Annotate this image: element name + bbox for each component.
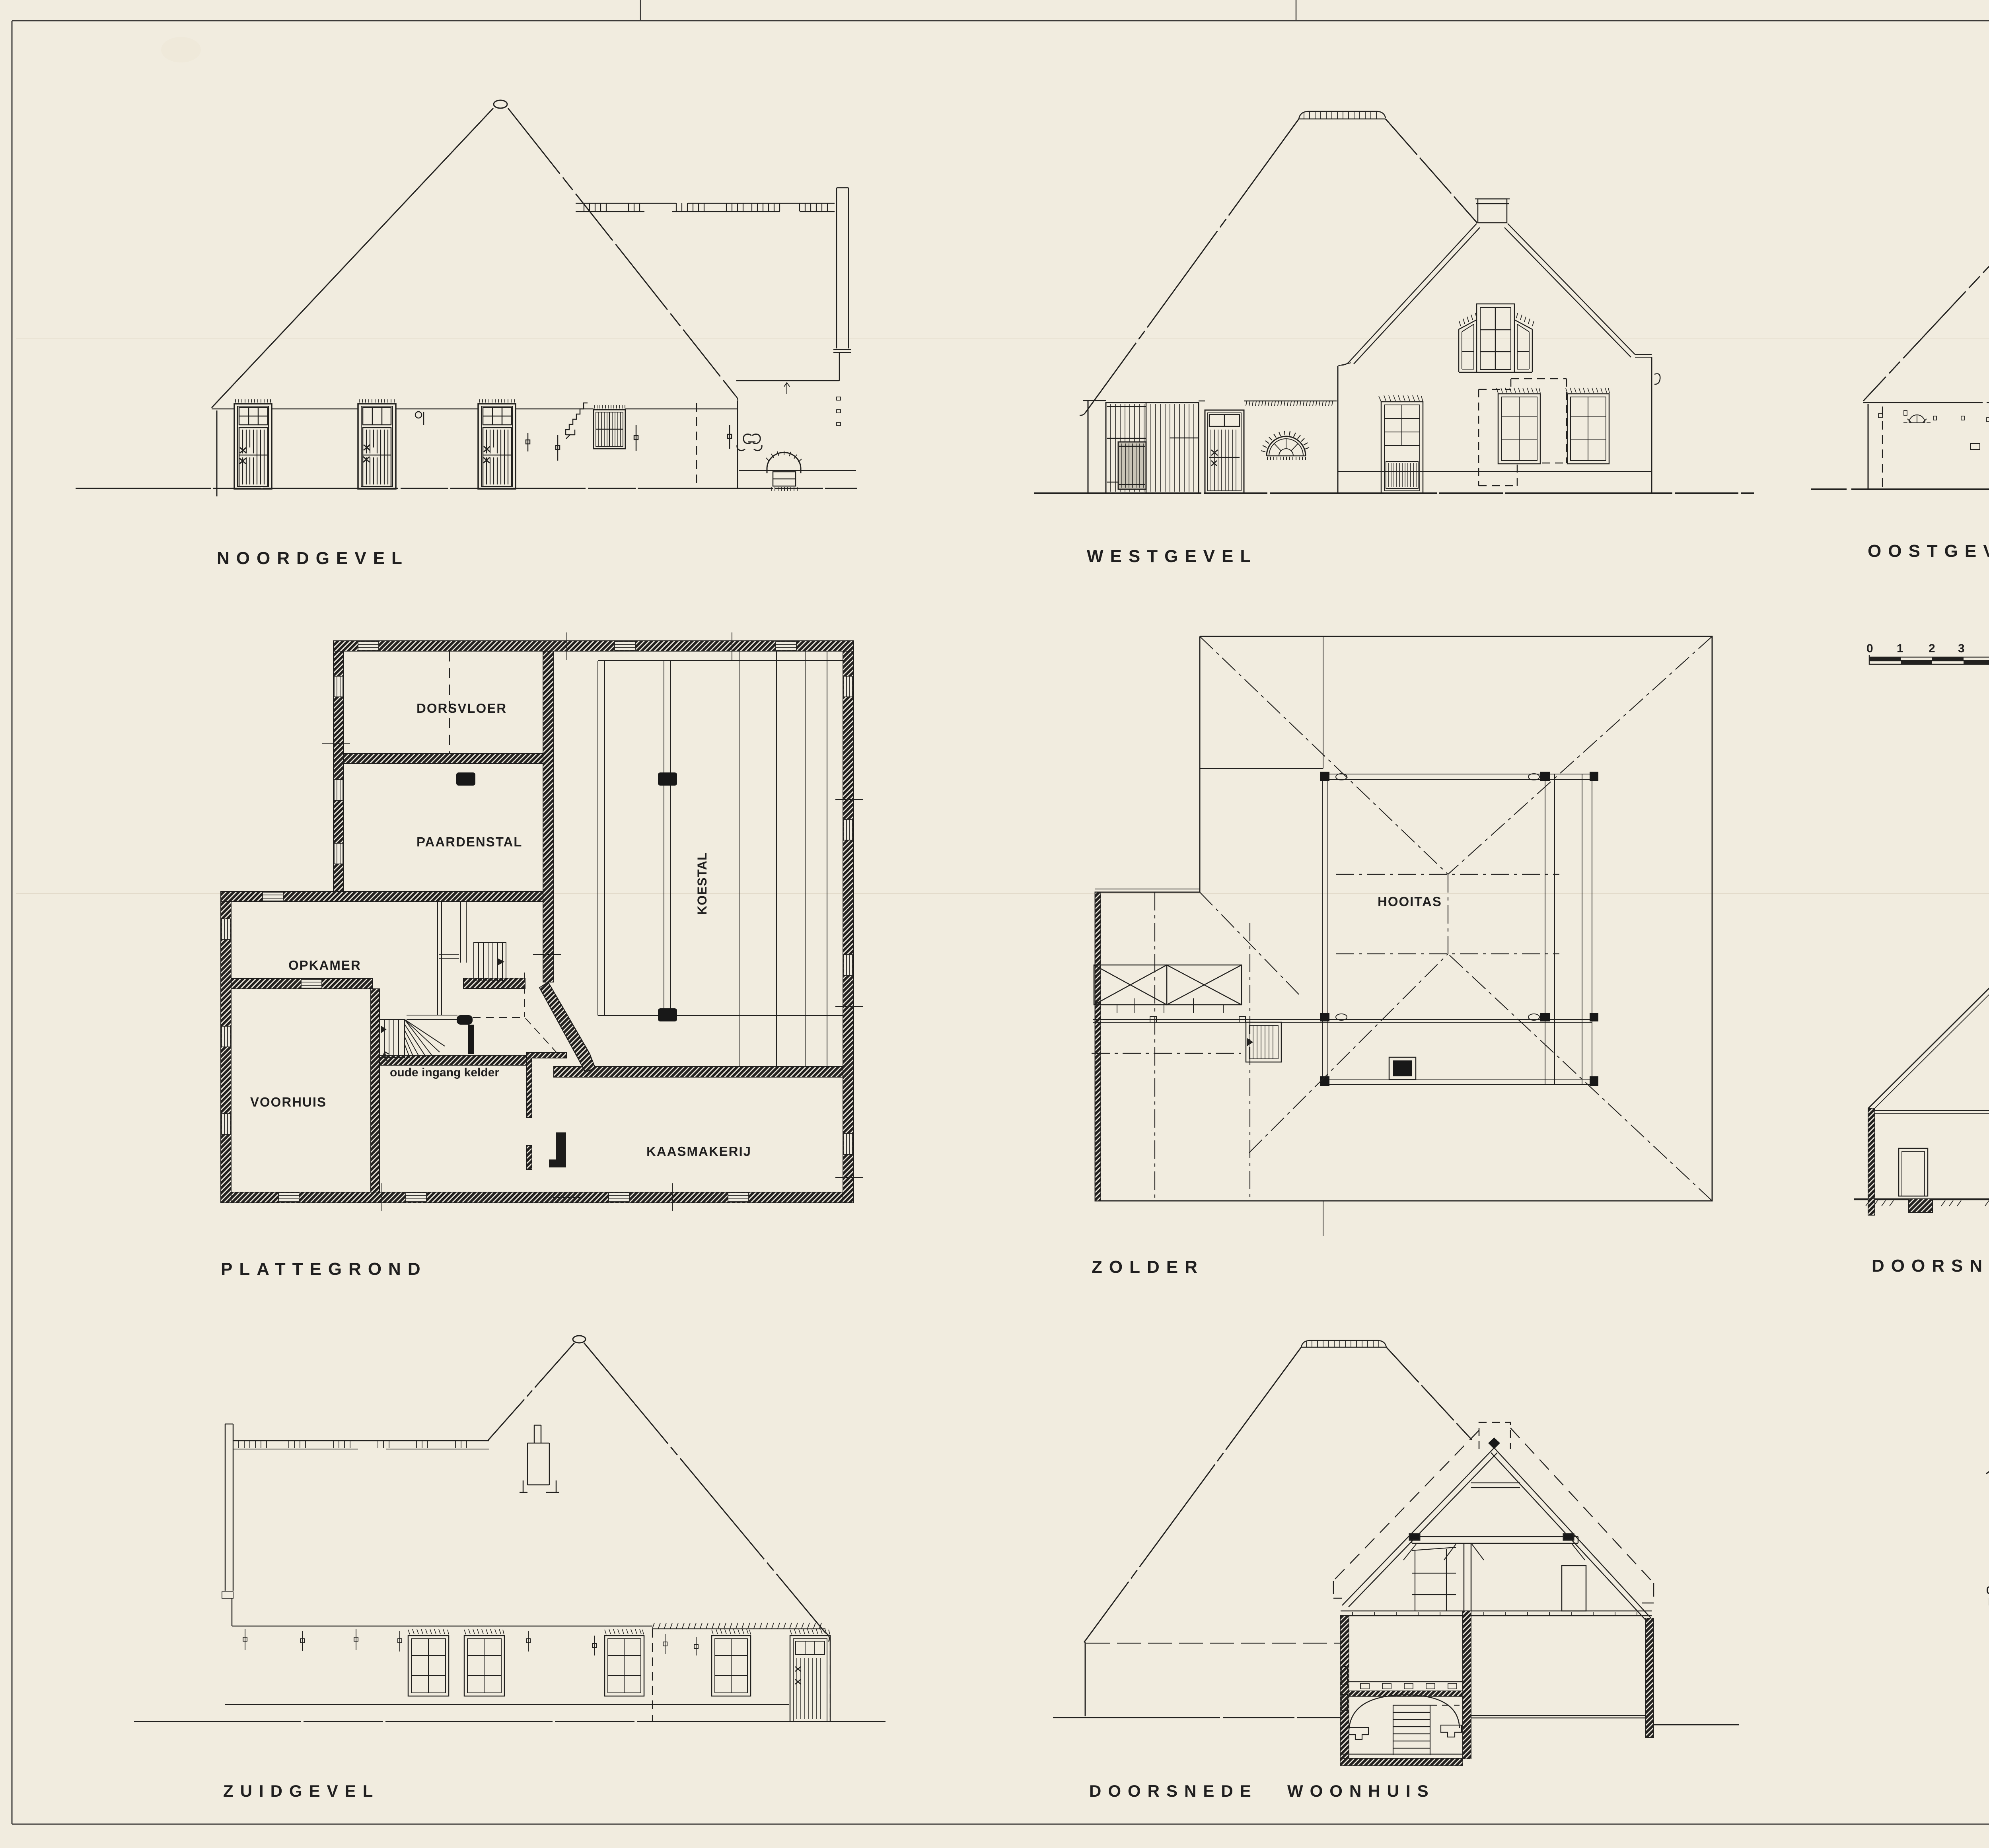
svg-text:ZOLDER: ZOLDER [1092, 1257, 1204, 1277]
svg-text:ZUIDGEVEL: ZUIDGEVEL [223, 1782, 380, 1800]
svg-text:0: 0 [1986, 1584, 1989, 1596]
svg-text:PAARDENSTAL: PAARDENSTAL [416, 835, 522, 849]
svg-text:PLATTEGROND: PLATTEGROND [221, 1259, 427, 1279]
svg-text:KOESTAL: KOESTAL [695, 852, 709, 915]
svg-text:WESTGEVEL: WESTGEVEL [1087, 547, 1257, 566]
svg-text:DORSVLOER: DORSVLOER [416, 701, 507, 716]
svg-text:WOONHUIS: WOONHUIS [1287, 1782, 1435, 1800]
svg-text:OPKAMER: OPKAMER [288, 958, 361, 973]
svg-text:1: 1 [1897, 642, 1903, 655]
svg-text:NOORDGEVEL: NOORDGEVEL [217, 549, 409, 568]
svg-text:DOORSNEDE: DOORSNEDE [1089, 1782, 1258, 1800]
svg-text:3: 3 [1958, 642, 1965, 655]
svg-text:DOORSNEDE: DOORSNEDE [1872, 1256, 1989, 1276]
svg-text:oude ingang kelder: oude ingang kelder [390, 1066, 499, 1079]
svg-text:HOOITAS: HOOITAS [1378, 894, 1442, 909]
svg-text:KAASMAKERIJ: KAASMAKERIJ [646, 1144, 751, 1159]
svg-text:2: 2 [1929, 642, 1935, 655]
svg-text:OOSTGEVEL: OOSTGEVEL [1868, 541, 1989, 561]
svg-text:VOORHUIS: VOORHUIS [250, 1095, 327, 1109]
svg-text:0: 0 [1866, 642, 1873, 655]
